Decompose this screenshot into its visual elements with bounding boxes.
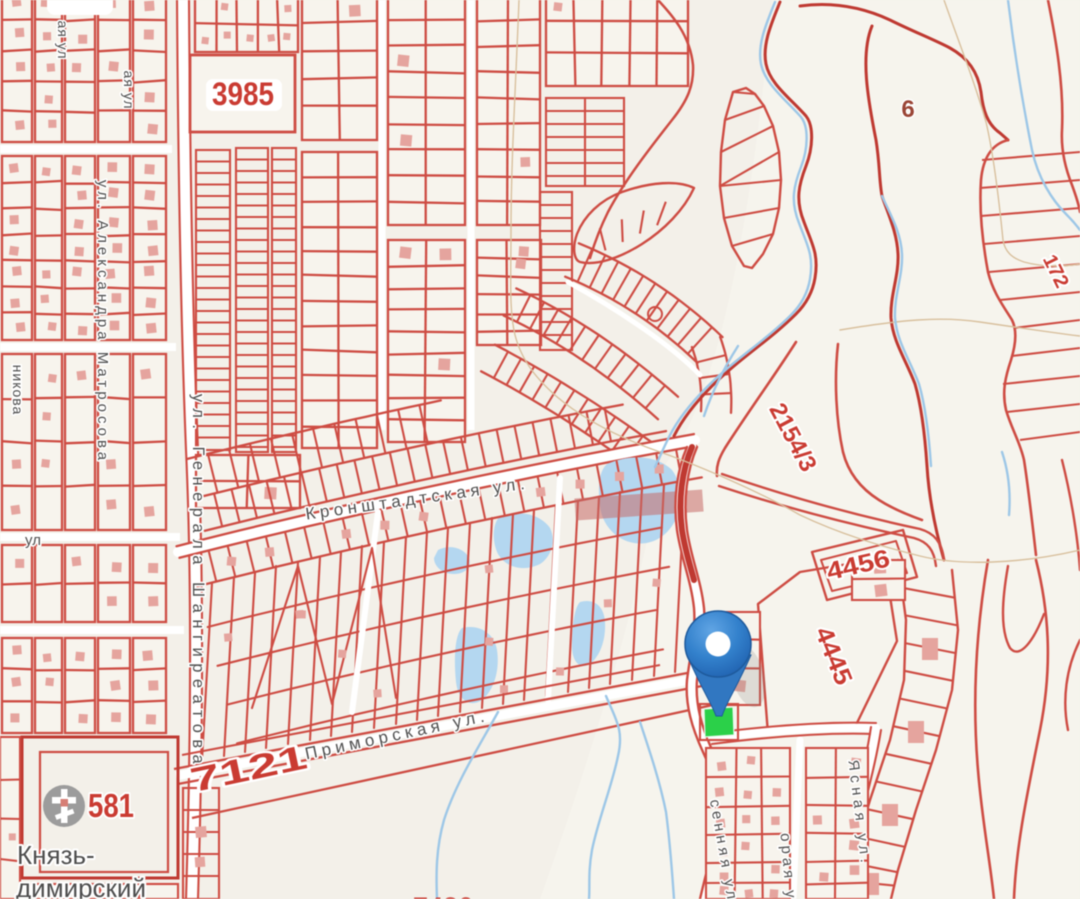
svg-text:Князь-: Князь- <box>17 840 95 870</box>
svg-text:ул. Генерала Шангиреатова: ул. Генерала Шангиреатова <box>189 394 207 770</box>
svg-text:ул. Александра Матросова: ул. Александра Матросова <box>94 180 111 464</box>
svg-text:димирский: димирский <box>16 873 146 899</box>
svg-text:ая ул: ая ул <box>55 20 71 59</box>
svg-text:581: 581 <box>88 787 134 824</box>
svg-text:7436: 7436 <box>413 892 473 899</box>
svg-text:ая ул: ая ул <box>121 70 137 109</box>
svg-text:ул: ул <box>25 532 41 549</box>
svg-text:3985: 3985 <box>212 76 274 112</box>
svg-text:никова: никова <box>10 365 26 416</box>
svg-text:6: 6 <box>901 96 914 123</box>
